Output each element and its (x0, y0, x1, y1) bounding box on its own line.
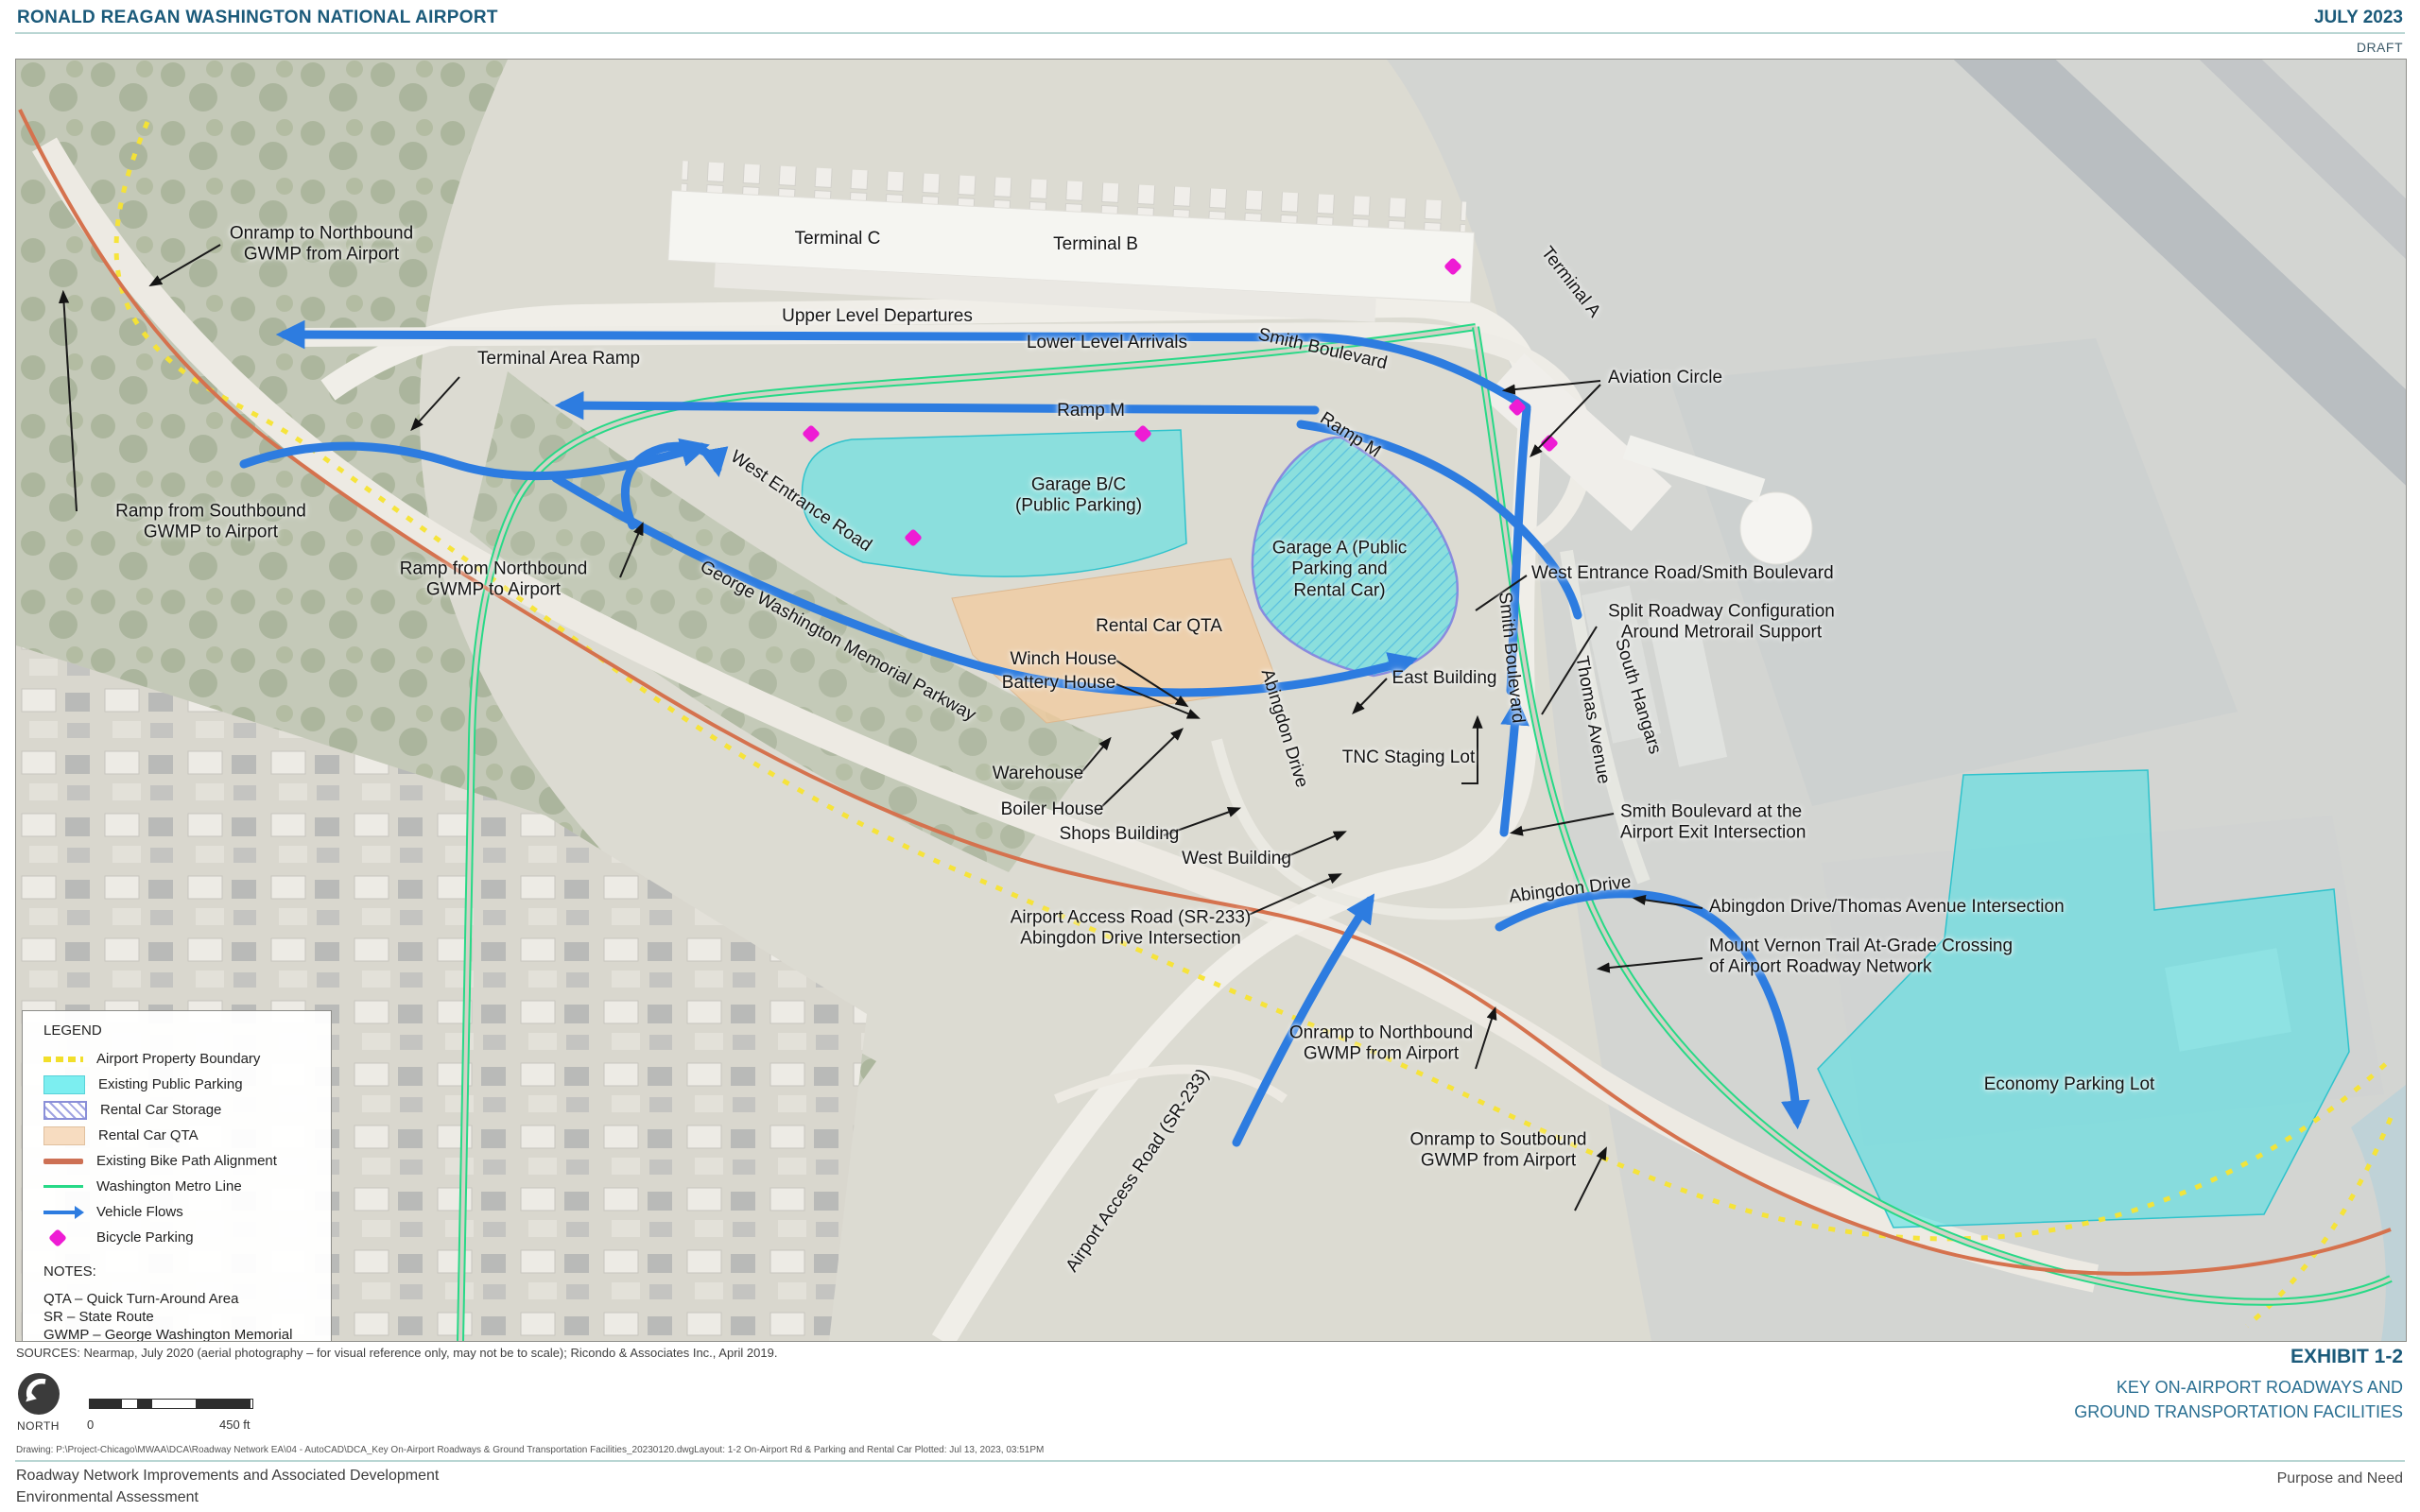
legend-item-flow: Vehicle Flows (43, 1199, 331, 1225)
exhibit-title-line1: KEY ON-AIRPORT ROADWAYS AND (2117, 1378, 2403, 1398)
project-title: Roadway Network Improvements and Associa… (16, 1468, 439, 1485)
map-label-mount-vernon-trail: Mount Vernon Trail At-Grade Crossing of … (1709, 936, 2013, 979)
legend-item-label: Airport Property Boundary (96, 1051, 260, 1067)
sources-note: SOURCES: Nearmap, July 2020 (aerial phot… (16, 1346, 777, 1360)
legend-item-bicycle: Bicycle Parking (43, 1225, 331, 1250)
legend-items: Airport Property BoundaryExisting Public… (43, 1046, 331, 1250)
map-label-terminal-c: Terminal C (795, 229, 881, 249)
exhibit-title-line2: GROUND TRANSPORTATION FACILITIES (2074, 1402, 2403, 1422)
header-date: JULY 2023 (2314, 8, 2403, 28)
map-label-west-building: West Building (1182, 849, 1291, 869)
map-label-aar-abingdon-intersection: Airport Access Road (SR-233) Abingdon Dr… (1011, 908, 1252, 951)
exhibit-number: EXHIBIT 1-2 (2290, 1346, 2403, 1368)
map-label-boiler-house: Boiler House (1001, 799, 1104, 820)
map-label-shops-building: Shops Building (1060, 824, 1180, 845)
header-rule (15, 32, 2405, 34)
map-label-east-building: East Building (1392, 668, 1497, 689)
legend-item-public: Existing Public Parking (43, 1072, 331, 1097)
legend-note: GWMP – George Washington Memorial Parkwa… (43, 1327, 331, 1343)
map-label-aviation-circle: Aviation Circle (1608, 368, 1722, 388)
footer-rule (15, 1460, 2405, 1462)
project-subtitle: Environmental Assessment (16, 1489, 199, 1506)
page-title: RONALD REAGAN WASHINGTON NATIONAL AIRPOR… (17, 8, 498, 28)
legend: LEGEND Airport Property BoundaryExisting… (22, 1010, 332, 1342)
legend-item-label: Washington Metro Line (96, 1178, 242, 1194)
legend-item-boundary: Airport Property Boundary (43, 1046, 331, 1072)
legend-item-metro: Washington Metro Line (43, 1174, 331, 1199)
map-label-battery-house: Battery House (1002, 673, 1115, 694)
map-label-warehouse: Warehouse (993, 764, 1083, 784)
map-label-economy-parking-lot: Economy Parking Lot (1984, 1074, 2155, 1095)
map-label-tnc-staging-lot: TNC Staging Lot (1342, 747, 1475, 768)
qta-swatch (43, 1126, 85, 1145)
flow-swatch (43, 1211, 76, 1214)
drawing-info: Drawing: P:\Project-Chicago\MWAA\DCA\Roa… (16, 1445, 1044, 1455)
map-label-abingdon-thomas-intersection: Abingdon Drive/Thomas Avenue Intersectio… (1709, 897, 2065, 918)
map-label-ramp-from-northbound: Ramp from Northbound GWMP to Airport (400, 559, 588, 602)
map-label-ramp-from-southbound: Ramp from Southbound GWMP to Airport (115, 502, 306, 544)
boundary-swatch (43, 1057, 83, 1062)
scale-bar (89, 1399, 253, 1409)
map-label-onramp-northbound-top: Onramp to Northbound GWMP from Airport (230, 224, 413, 266)
public-swatch (43, 1075, 85, 1094)
map-label-garage-a: Garage A (Public Parking and Rental Car) (1272, 538, 1408, 601)
draft-watermark: DRAFT (2357, 40, 2403, 55)
map-label-split-roadway: Split Roadway Configuration Around Metro… (1608, 602, 1835, 644)
storage-swatch (43, 1101, 87, 1120)
scale-distance-label: 450 ft (219, 1417, 251, 1432)
bicycle-swatch (48, 1228, 67, 1247)
map-label-smith-blvd-exit: Smith Boulevard at the Airport Exit Inte… (1620, 802, 1806, 845)
map-label-upper-level-departures: Upper Level Departures (782, 306, 973, 327)
legend-item-label: Existing Public Parking (98, 1076, 243, 1092)
north-label: NORTH (17, 1419, 60, 1433)
legend-item-qta: Rental Car QTA (43, 1123, 331, 1148)
legend-notes-title: NOTES: (43, 1263, 331, 1280)
legend-title: LEGEND (43, 1022, 331, 1039)
map-label-ramp-m-west: Ramp M (1057, 401, 1125, 421)
scale-zero-label: 0 (87, 1417, 94, 1432)
legend-item-label: Existing Bike Path Alignment (96, 1153, 277, 1169)
map-label-lower-level-arrivals: Lower Level Arrivals (1027, 333, 1187, 353)
map-label-terminal-b: Terminal B (1053, 234, 1138, 255)
legend-notes: QTA – Quick Turn-Around AreaSR – State R… (43, 1291, 331, 1342)
north-arrow-icon (17, 1372, 60, 1416)
chapter-label: Purpose and Need (2277, 1470, 2403, 1487)
map-label-winch-house: Winch House (1011, 649, 1117, 670)
legend-item-label: Bicycle Parking (96, 1229, 194, 1246)
map-label-terminal-area-ramp: Terminal Area Ramp (477, 349, 640, 369)
bike-swatch (43, 1159, 83, 1164)
map-label-west-entrance-smith: West Entrance Road/Smith Boulevard (1531, 563, 1834, 584)
map-label-garage-bc: Garage B/C (Public Parking) (1015, 475, 1142, 518)
legend-item-storage: Rental Car Storage (43, 1097, 331, 1123)
map-label-rental-car-qta: Rental Car QTA (1096, 616, 1222, 637)
legend-note: QTA – Quick Turn-Around Area (43, 1291, 331, 1309)
map-label-onramp-southbound: Onramp to Soutbound GWMP from Airport (1410, 1130, 1587, 1173)
legend-item-label: Vehicle Flows (96, 1204, 183, 1220)
metro-swatch (43, 1185, 83, 1188)
legend-item-bike: Existing Bike Path Alignment (43, 1148, 331, 1174)
legend-item-label: Rental Car Storage (100, 1102, 221, 1118)
legend-note: SR – State Route (43, 1309, 331, 1327)
airport-map: Onramp to Northbound GWMP from AirportTe… (15, 59, 2407, 1342)
map-label-onramp-northbound-bottom: Onramp to Northbound GWMP from Airport (1289, 1023, 1473, 1066)
legend-item-label: Rental Car QTA (98, 1127, 199, 1143)
